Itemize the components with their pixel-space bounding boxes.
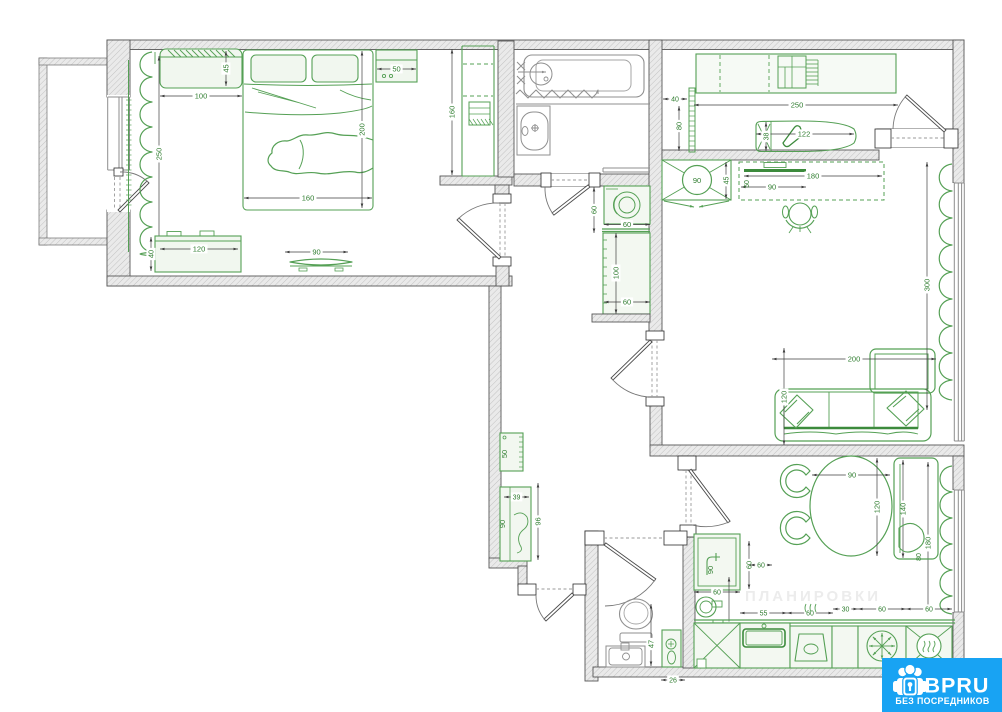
svg-text:39: 39 xyxy=(513,495,521,502)
svg-text:60: 60 xyxy=(757,563,765,570)
svg-text:40: 40 xyxy=(671,97,679,104)
svg-text:180: 180 xyxy=(807,172,820,181)
svg-text:90: 90 xyxy=(312,248,320,257)
svg-text:250: 250 xyxy=(155,148,164,161)
svg-text:180: 180 xyxy=(924,537,933,550)
svg-text:60: 60 xyxy=(590,206,599,214)
svg-text:50: 50 xyxy=(744,180,751,188)
svg-text:90: 90 xyxy=(498,520,507,528)
svg-text:200: 200 xyxy=(358,123,367,136)
svg-text:100: 100 xyxy=(612,267,621,280)
svg-text:50: 50 xyxy=(392,65,400,74)
svg-text:90: 90 xyxy=(768,183,776,192)
svg-text:60: 60 xyxy=(925,607,933,614)
svg-text:160: 160 xyxy=(448,106,457,119)
svg-text:60: 60 xyxy=(623,220,631,229)
svg-text:120: 120 xyxy=(873,501,882,514)
svg-text:90: 90 xyxy=(706,566,715,574)
svg-text:60: 60 xyxy=(713,590,721,597)
svg-text:BPRU: BPRU xyxy=(925,674,990,698)
svg-text:45: 45 xyxy=(724,177,731,185)
svg-text:47: 47 xyxy=(647,640,656,648)
svg-text:60: 60 xyxy=(878,607,886,614)
svg-text:96: 96 xyxy=(534,517,543,525)
svg-text:50: 50 xyxy=(500,450,509,458)
svg-text:200: 200 xyxy=(848,355,861,364)
svg-text:38: 38 xyxy=(764,133,771,141)
svg-text:60: 60 xyxy=(623,298,631,307)
svg-text:80: 80 xyxy=(916,553,923,561)
svg-text:100: 100 xyxy=(195,92,208,101)
svg-text:26: 26 xyxy=(669,678,677,685)
svg-text:40: 40 xyxy=(147,250,156,258)
svg-text:80: 80 xyxy=(675,122,684,130)
svg-text:160: 160 xyxy=(302,194,315,203)
svg-text:ПЛАНИРОВКИ: ПЛАНИРОВКИ xyxy=(745,588,881,605)
svg-text:БЕЗ ПОСРЕДНИКОВ: БЕЗ ПОСРЕДНИКОВ xyxy=(895,696,989,706)
svg-text:250: 250 xyxy=(791,101,804,110)
svg-text:90: 90 xyxy=(848,471,856,480)
svg-text:120: 120 xyxy=(193,245,206,254)
svg-text:90: 90 xyxy=(693,176,701,185)
svg-text:300: 300 xyxy=(923,279,932,292)
svg-text:55: 55 xyxy=(760,611,768,618)
svg-text:30: 30 xyxy=(842,607,850,614)
svg-text:122: 122 xyxy=(798,130,811,139)
svg-text:120: 120 xyxy=(780,391,789,404)
svg-text:60: 60 xyxy=(806,611,814,618)
svg-text:45: 45 xyxy=(222,64,231,72)
